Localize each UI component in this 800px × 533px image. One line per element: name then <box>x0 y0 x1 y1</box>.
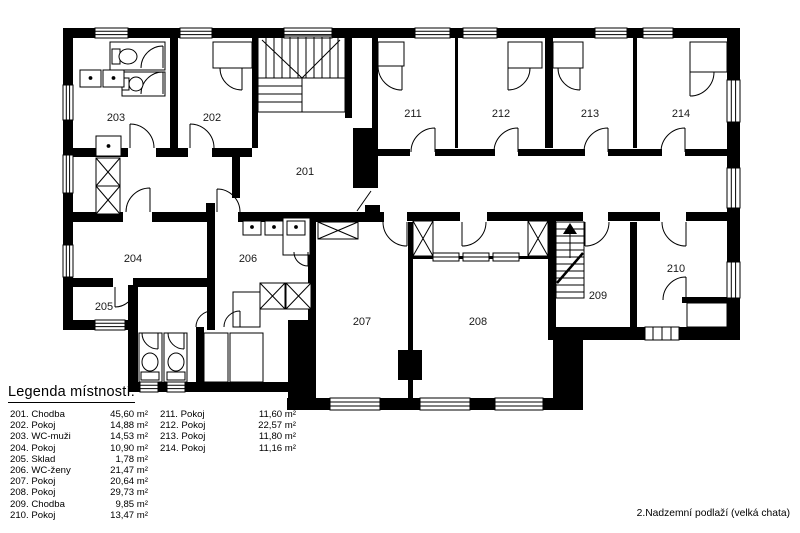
window <box>727 262 740 298</box>
closet <box>687 303 727 327</box>
room-label-201: 201 <box>296 166 314 178</box>
room-area: 9,85 m² <box>115 499 148 510</box>
toilet-icon <box>167 353 185 380</box>
door-arc <box>663 277 686 300</box>
door-arc <box>383 222 407 246</box>
doors <box>115 46 714 349</box>
toilet-icon <box>122 77 143 91</box>
window <box>727 168 740 208</box>
legend-row: 207. Pokoj20,64 m² <box>10 476 148 487</box>
legend-row: 201. Chodba45,60 m² <box>10 409 148 420</box>
window <box>727 80 740 122</box>
floor-plan-sheet: 201 202 203 204 205 206 207 208 209 210 … <box>0 0 800 533</box>
door-arc <box>190 124 214 148</box>
door-arc <box>661 128 685 152</box>
room-name: 202. Pokoj <box>10 420 55 431</box>
room-name: 201. Chodba <box>10 409 65 420</box>
room-label-206: 206 <box>239 253 257 265</box>
legend-column-2: 211. Pokoj11,60 m² 212. Pokoj22,57 m² 21… <box>160 409 296 454</box>
room-label-204: 204 <box>124 253 142 265</box>
sink-icon <box>287 221 305 235</box>
secondary-staircase <box>556 222 584 298</box>
legend-row: 202. Pokoj14,88 m² <box>10 420 148 431</box>
door-arc <box>558 68 580 90</box>
room-name: 208. Pokoj <box>10 487 55 498</box>
room-label-202: 202 <box>203 112 221 124</box>
window <box>495 398 543 410</box>
legend-row: 204. Pokoj10,90 m² <box>10 443 148 454</box>
room-area: 20,64 m² <box>110 476 148 487</box>
door-arc <box>220 68 242 90</box>
legend-row: 211. Pokoj11,60 m² <box>160 409 296 420</box>
door-arc <box>662 222 686 246</box>
window <box>595 28 627 38</box>
closet <box>213 42 252 68</box>
door-arc <box>126 188 150 212</box>
closet <box>508 42 542 68</box>
room-label-205: 205 <box>95 301 113 313</box>
room-area: 14,53 m² <box>110 431 148 442</box>
room-label-212: 212 <box>492 108 510 120</box>
window <box>330 398 380 410</box>
legend-row: 208. Pokoj29,73 m² <box>10 487 148 498</box>
sink-icon <box>80 70 101 87</box>
room-name: 212. Pokoj <box>160 420 205 431</box>
utility-cubby <box>233 292 260 327</box>
room-area: 29,73 m² <box>110 487 148 498</box>
sink-icon <box>103 70 124 87</box>
room-name: 203. WC-muži <box>10 431 71 442</box>
closet <box>690 42 727 72</box>
legend-row: 210. Pokoj13,47 m² <box>10 510 148 521</box>
room-name: 211. Pokoj <box>160 409 205 420</box>
main-staircase <box>258 36 345 112</box>
legend-row: 209. Chodba9,85 m² <box>10 499 148 510</box>
legend-row: 213. Pokoj11,80 m² <box>160 431 296 442</box>
legend-row: 206. WC-ženy21,47 m² <box>10 465 148 476</box>
legend-row: 212. Pokoj22,57 m² <box>160 420 296 431</box>
glass-panel <box>493 253 519 261</box>
room-area: 13,47 m² <box>110 510 148 521</box>
legend-row: 214. Pokoj11,16 m² <box>160 443 296 454</box>
room-name: 206. WC-ženy <box>10 465 71 476</box>
room-label-210: 210 <box>667 263 685 275</box>
room-label-203: 203 <box>107 112 125 124</box>
closet <box>553 42 583 68</box>
room-name: 207. Pokoj <box>10 476 55 487</box>
floor-caption: 2.Nadzemní podlaží (velká chata) <box>637 508 790 519</box>
toilet-icon <box>141 353 159 380</box>
wardrobe-icon <box>286 283 311 309</box>
legend-row: 203. WC-muži14,53 m² <box>10 431 148 442</box>
wardrobe-icon <box>413 221 433 256</box>
room-label-207: 207 <box>353 316 371 328</box>
door-arc <box>690 72 714 96</box>
shower-stall <box>230 333 263 382</box>
room-area: 10,90 m² <box>110 443 148 454</box>
glass-panel <box>433 253 459 261</box>
sink-icon <box>96 136 121 156</box>
door-arc <box>585 222 609 246</box>
legend: Legenda místností: 201. Chodba45,60 m² 2… <box>8 383 308 409</box>
shaft-icon <box>96 186 120 214</box>
wardrobe-icon <box>260 283 285 309</box>
window <box>95 320 125 330</box>
window <box>180 28 212 38</box>
window <box>415 28 450 38</box>
legend-column-1: 201. Chodba45,60 m² 202. Pokoj14,88 m² 2… <box>10 409 148 521</box>
legend-row: 205. Sklad1,78 m² <box>10 454 148 465</box>
toilet-icon <box>112 49 137 64</box>
room-area: 22,57 m² <box>258 420 296 431</box>
room-area: 11,60 m² <box>259 409 296 420</box>
door-arc <box>462 222 486 246</box>
window <box>63 245 73 277</box>
room-area: 11,16 m² <box>259 443 296 454</box>
room-label-209: 209 <box>589 290 607 302</box>
sink-icon <box>265 221 283 235</box>
closet <box>378 42 404 66</box>
window <box>63 155 73 193</box>
room-name: 213. Pokoj <box>160 431 205 442</box>
room-area: 11,80 m² <box>259 431 296 442</box>
room-name: 204. Pokoj <box>10 443 55 454</box>
shower-stall <box>204 333 228 382</box>
room-name: 210. Pokoj <box>10 510 55 521</box>
legend-heading: Legenda místností: <box>8 384 135 403</box>
room-area: 14,88 m² <box>110 420 148 431</box>
window <box>63 85 73 120</box>
room-area: 21,47 m² <box>110 465 148 476</box>
window <box>420 398 470 410</box>
room-label-211: 211 <box>404 108 422 120</box>
door-arc <box>508 68 530 90</box>
window <box>643 28 673 38</box>
window <box>463 28 497 38</box>
wardrobe-icon <box>318 222 358 239</box>
door-arc <box>130 124 154 148</box>
room-name: 214. Pokoj <box>160 443 205 454</box>
room-area: 1,78 m² <box>115 454 148 465</box>
room-area: 45,60 m² <box>110 409 148 420</box>
room-name: 209. Chodba <box>10 499 65 510</box>
room-name: 205. Sklad <box>10 454 55 465</box>
sink-icon <box>243 221 261 235</box>
door-arc <box>411 128 435 152</box>
window <box>95 28 128 38</box>
door-arc <box>494 128 518 152</box>
glass-panel <box>463 253 489 261</box>
room-label-214: 214 <box>672 108 690 120</box>
exterior-steps <box>645 327 679 340</box>
door-arc <box>584 128 608 152</box>
wardrobe-icon <box>528 221 548 256</box>
room-label-208: 208 <box>469 316 487 328</box>
shaft-icon <box>96 158 120 186</box>
room-label-213: 213 <box>581 108 599 120</box>
door-arc <box>378 66 402 90</box>
